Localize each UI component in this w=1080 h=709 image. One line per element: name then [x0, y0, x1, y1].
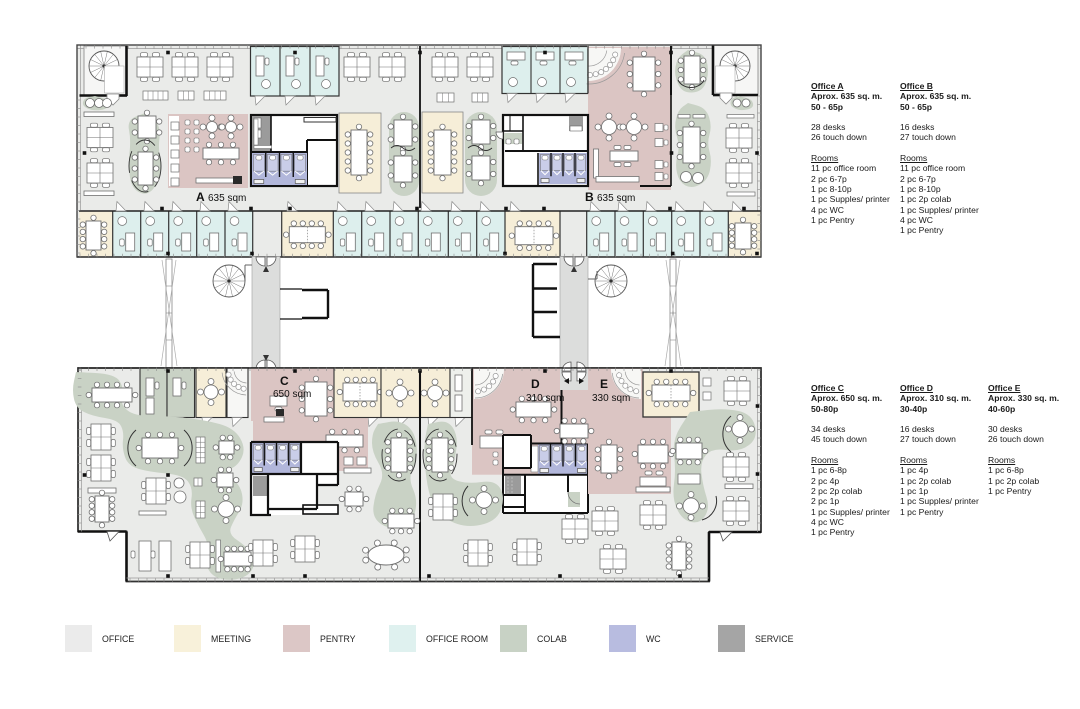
svg-text:A: A [196, 190, 205, 204]
svg-text:310 sqm: 310 sqm [526, 393, 564, 404]
svg-text:635 sqm: 635 sqm [208, 193, 246, 204]
svg-text:E: E [600, 377, 608, 391]
svg-text:D: D [531, 377, 540, 391]
svg-text:635 sqm: 635 sqm [597, 193, 635, 204]
svg-text:330 sqm: 330 sqm [592, 393, 630, 404]
svg-text:650 sqm: 650 sqm [273, 389, 311, 400]
svg-text:C: C [280, 374, 289, 388]
svg-text:B: B [585, 190, 594, 204]
